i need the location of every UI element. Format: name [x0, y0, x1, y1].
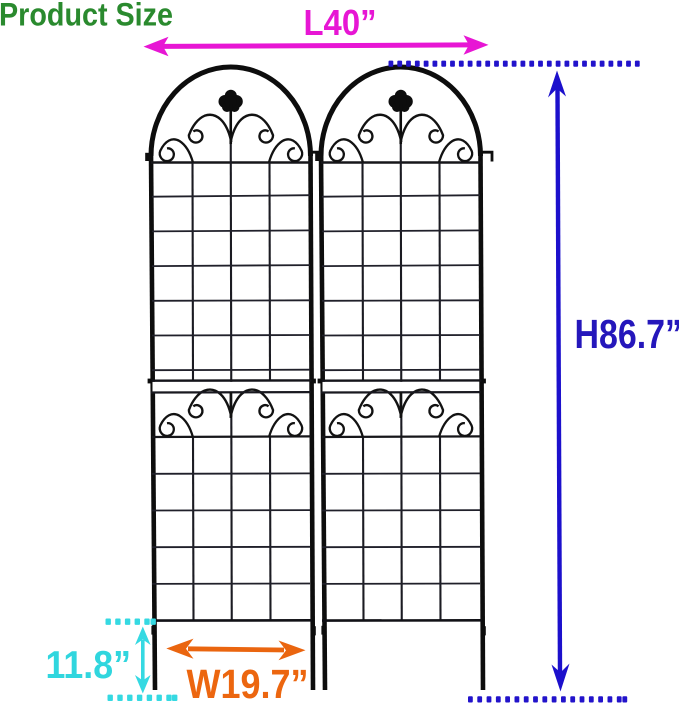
- svg-text:H86.7”: H86.7”: [575, 311, 679, 357]
- svg-text:Product Size: Product Size: [0, 0, 173, 33]
- svg-text:L40”: L40”: [304, 2, 377, 43]
- svg-text:11.8”: 11.8”: [46, 644, 132, 687]
- svg-text:W19.7”: W19.7”: [187, 661, 309, 705]
